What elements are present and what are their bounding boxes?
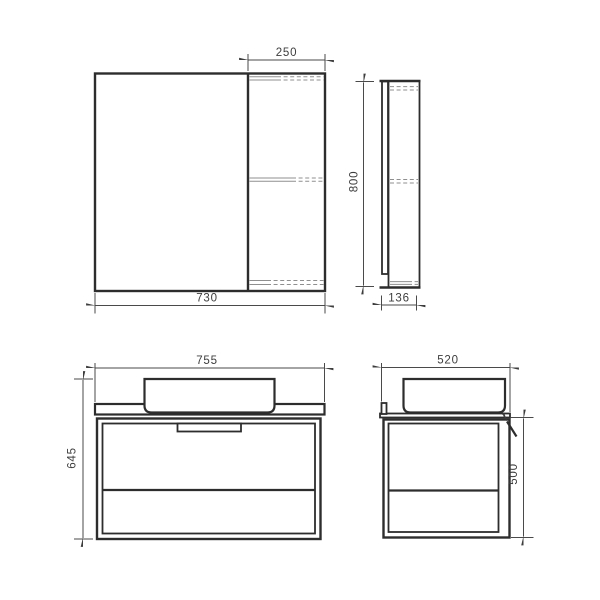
dim-label-800: 800 [349,171,361,193]
shelf-lines-middle [250,178,324,181]
technical-drawing-canvas: 250 730 [0,0,600,600]
dim-label-730: 730 [196,293,218,305]
side-shelf-lines-top [390,87,418,90]
mirror-door-panel [382,82,388,275]
dimension-vanity-total-height: 645 [67,379,94,539]
vanity-cabinet-outline [97,419,321,540]
dimension-mirror-total-width: 730 [95,293,325,314]
vanity-side-inner-frame [389,424,499,533]
dim-label-520: 520 [437,355,459,367]
dim-label-136: 136 [388,293,410,305]
dim-label-500: 500 [508,463,520,485]
dimension-mirror-height: 800 [349,82,375,287]
countertop-side [380,414,510,418]
vanity-side-cabinet-outline [384,420,510,538]
basin-side [404,379,506,413]
basin-front [145,379,275,413]
drawer-front-frame [103,424,316,534]
side-shelf-lines-bottom [390,282,418,285]
dim-label-645: 645 [67,447,79,469]
shelf-lines-bottom [250,281,324,285]
shelf-lines-top [250,77,324,80]
vanity-front-view: 755 645 [67,355,325,539]
wall-lip [382,403,387,414]
dim-label-250: 250 [276,47,298,59]
dim-label-755: 755 [196,355,218,367]
dimension-mirror-depth: 136 [382,293,417,311]
drawer-handle-recess [178,424,242,432]
mirror-cabinet-front-view: 250 730 [95,47,325,314]
dimension-shelf-section-width: 250 [248,47,325,71]
mirror-cabinet-side-view: 800 136 [349,81,421,311]
vanity-side-view: 520 500 [380,355,534,538]
dimension-cabinet-height: 500 [508,418,534,538]
side-shelf-lines-middle [390,180,418,184]
side-body-outline [389,81,420,288]
mirror-cabinet-outline [95,74,325,292]
